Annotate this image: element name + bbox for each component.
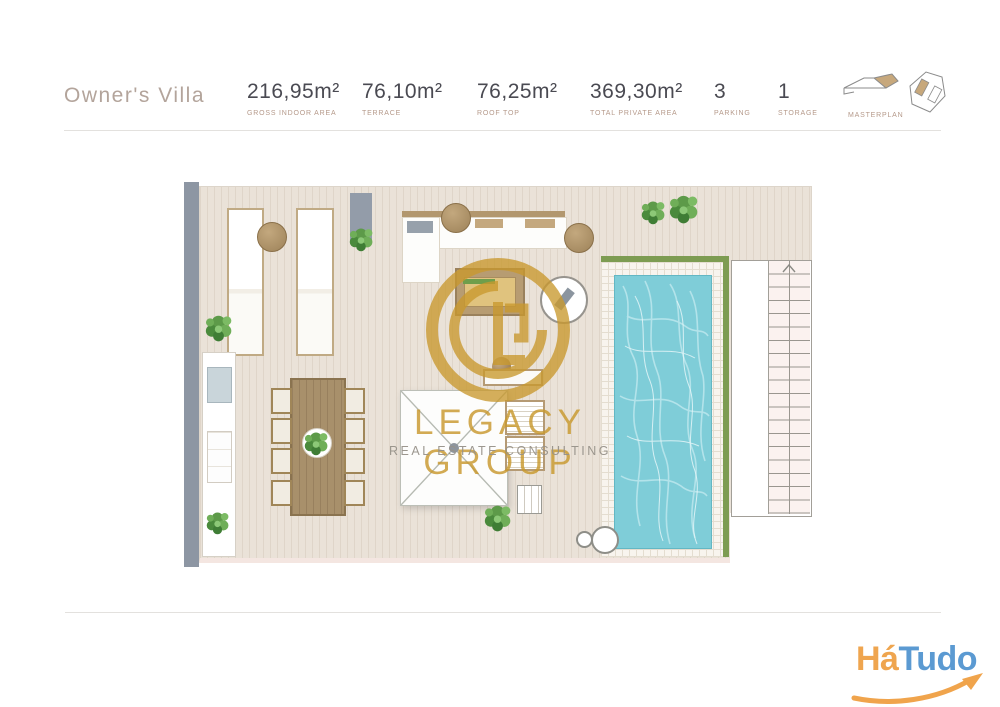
appliance [207,431,232,483]
floor-plan [183,180,833,572]
wall [184,182,199,567]
bench [483,369,543,386]
sink [207,367,232,403]
swimming-pool [601,256,729,557]
pool-water [614,275,712,549]
pergola-icon [400,390,508,506]
round-table [540,276,588,324]
spec-terrace: 76,10m² TERRACE [362,80,443,117]
side-table-round [257,222,287,252]
deck-lounger [505,436,545,471]
plant-icon [304,431,328,455]
dining-chair [271,418,292,444]
plant-icon [484,504,511,531]
spec-parking: 3 PARKING [714,80,751,117]
plant-icon [349,227,373,251]
masterplan-icon [838,68,956,118]
pool-planter-edge [723,256,729,557]
spec-value: 76,10m² [362,80,443,104]
spec-label: PARKING [714,110,751,117]
plant-icon [206,511,229,534]
pouf [441,203,471,233]
plant-icon [205,314,232,341]
spec-value: 369,30m² [590,80,683,104]
sofa-cushion [525,219,555,228]
dining-chair [271,448,292,474]
spec-storage: 1 STORAGE [778,80,818,117]
sofa-cushion [407,221,433,233]
table-item [554,288,575,311]
plant-icon [641,200,665,224]
masterplan-label: MASTERPLAN [848,112,903,119]
coffee-table-decor [463,279,495,284]
spec-value: 216,95m² [247,80,340,104]
spec-value: 76,25m² [477,80,558,104]
spec-value: 3 [714,80,751,104]
deck-lounger [505,400,545,435]
sofa-cushion [475,219,503,228]
plan-cutout [730,513,813,565]
spec-label: STORAGE [778,110,818,117]
spec-label: ROOF TOP [477,110,558,117]
brochure-page: Owner's Villa 216,95m² GROSS INDOOR AREA… [0,0,1000,707]
deck-hatch [517,485,542,514]
plant-icon [669,194,698,223]
spec-roof-top: 76,25m² ROOF TOP [477,80,558,117]
footer-divider [65,612,941,613]
spec-value: 1 [778,80,818,104]
dining-chair [344,418,365,444]
spec-label: GROSS INDOOR AREA [247,110,340,117]
dining-chair [344,480,365,506]
spec-gross-indoor-area: 216,95m² GROSS INDOOR AREA [247,80,340,117]
spec-total-private-area: 369,30m² TOTAL PRIVATE AREA [590,80,683,117]
dining-chair [344,388,365,414]
stair-treads [768,261,810,514]
dining-chair [271,388,292,414]
hatudo-swoosh-icon [850,672,986,704]
pouf [564,223,594,253]
sun-lounger [296,208,334,356]
pool-stool [591,526,619,554]
dining-chair [271,480,292,506]
page-title: Owner's Villa [64,84,205,108]
spec-label: TOTAL PRIVATE AREA [590,110,683,117]
staircase [731,260,812,517]
coffee-table [455,268,525,316]
dining-chair [344,448,365,474]
stairs-up-icon [782,264,796,273]
spec-label: TERRACE [362,110,443,117]
header-divider [64,130,941,131]
